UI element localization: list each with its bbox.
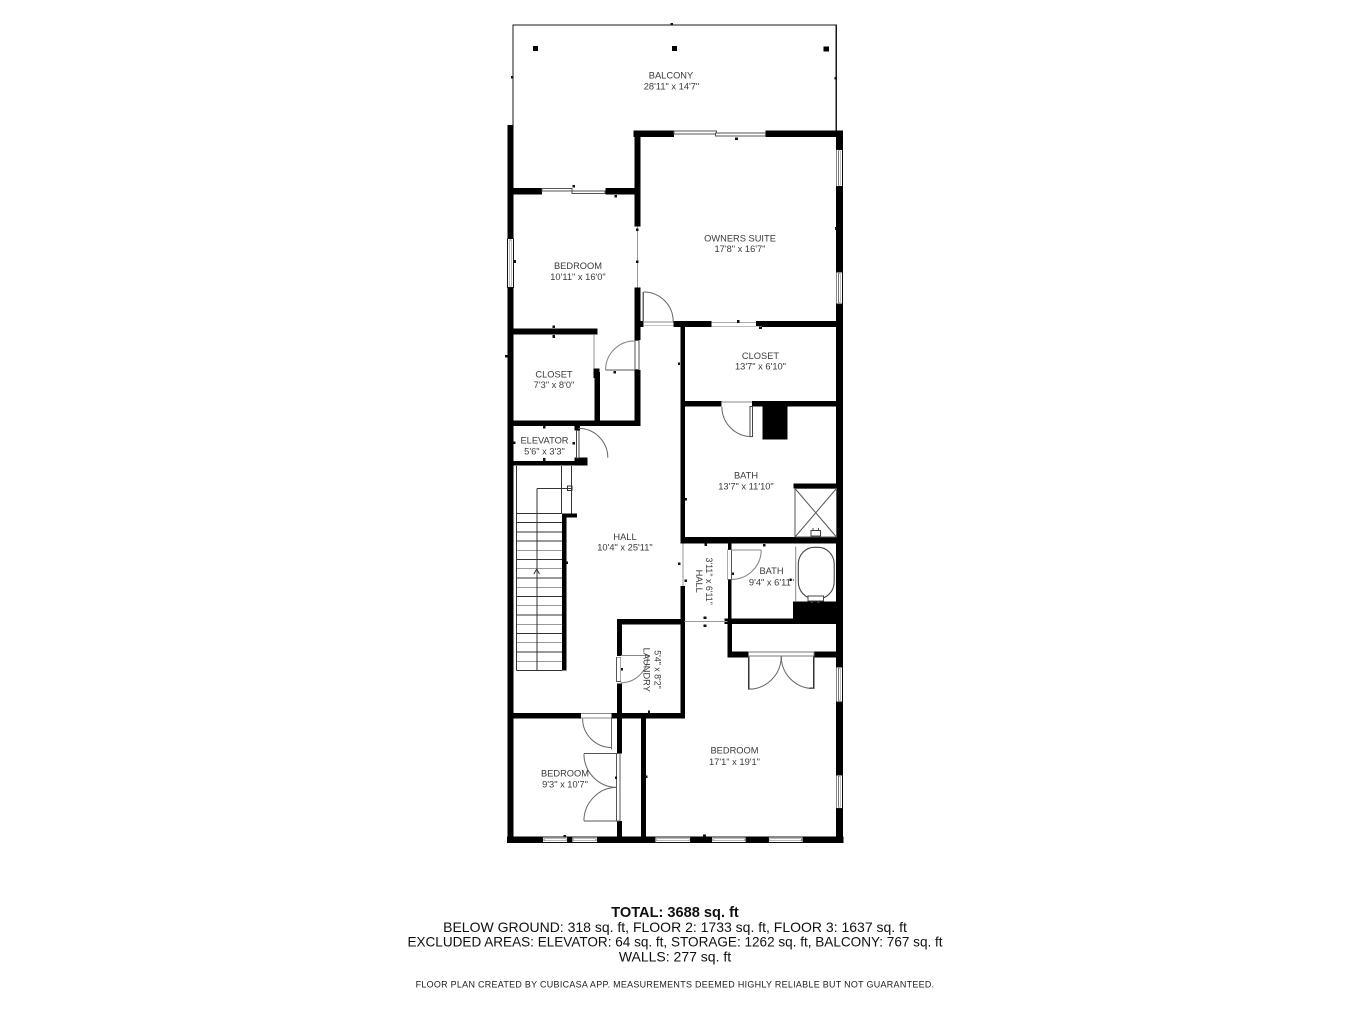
svg-text:HALL: HALL bbox=[694, 570, 704, 593]
svg-text:BATH: BATH bbox=[759, 566, 783, 576]
svg-text:OWNERS SUITE: OWNERS SUITE bbox=[704, 233, 776, 243]
svg-text:3'11" x 6'11": 3'11" x 6'11" bbox=[704, 558, 714, 605]
svg-text:BELOW GROUND: 318 sq. ft, FLOO: BELOW GROUND: 318 sq. ft, FLOOR 2: 1733 … bbox=[443, 919, 907, 935]
svg-text:9'4" x 6'11": 9'4" x 6'11" bbox=[749, 578, 794, 588]
svg-text:13'7" x 6'10": 13'7" x 6'10" bbox=[735, 362, 786, 372]
svg-text:CLOSET: CLOSET bbox=[535, 370, 573, 380]
svg-text:10'4" x 25'11": 10'4" x 25'11" bbox=[597, 543, 652, 553]
svg-text:ELEVATOR: ELEVATOR bbox=[520, 436, 568, 446]
svg-text:HALL: HALL bbox=[613, 532, 636, 542]
svg-text:FLOOR PLAN CREATED BY CUBICASA: FLOOR PLAN CREATED BY CUBICASA APP. MEAS… bbox=[416, 979, 935, 989]
svg-text:BALCONY: BALCONY bbox=[649, 71, 693, 81]
svg-text:13'7" x 11'10": 13'7" x 11'10" bbox=[718, 482, 773, 492]
svg-text:BEDROOM: BEDROOM bbox=[541, 769, 589, 779]
svg-text:LAUNDRY: LAUNDRY bbox=[642, 648, 652, 692]
svg-text:9'3" x 10'7": 9'3" x 10'7" bbox=[542, 780, 588, 790]
svg-text:10'11" x 16'0": 10'11" x 16'0" bbox=[550, 272, 605, 282]
svg-text:17'8" x 16'7": 17'8" x 16'7" bbox=[715, 244, 766, 254]
svg-text:28'11" x 14'7": 28'11" x 14'7" bbox=[644, 82, 699, 92]
svg-text:EXCLUDED AREAS: ELEVATOR: 64 s: EXCLUDED AREAS: ELEVATOR: 64 sq. ft, STO… bbox=[407, 934, 942, 949]
svg-text:5'4" x 8'2": 5'4" x 8'2" bbox=[653, 650, 663, 688]
svg-text:BEDROOM: BEDROOM bbox=[554, 261, 602, 271]
svg-text:7'3" x 8'0": 7'3" x 8'0" bbox=[534, 380, 575, 390]
svg-text:BATH: BATH bbox=[734, 470, 758, 480]
svg-text:CLOSET: CLOSET bbox=[742, 351, 780, 361]
svg-text:BEDROOM: BEDROOM bbox=[710, 746, 758, 756]
svg-text:5'6" x 3'3": 5'6" x 3'3" bbox=[524, 446, 565, 456]
svg-text:17'1" x 19'1": 17'1" x 19'1" bbox=[709, 757, 760, 767]
svg-text:WALLS: 277 sq. ft: WALLS: 277 sq. ft bbox=[619, 948, 731, 964]
